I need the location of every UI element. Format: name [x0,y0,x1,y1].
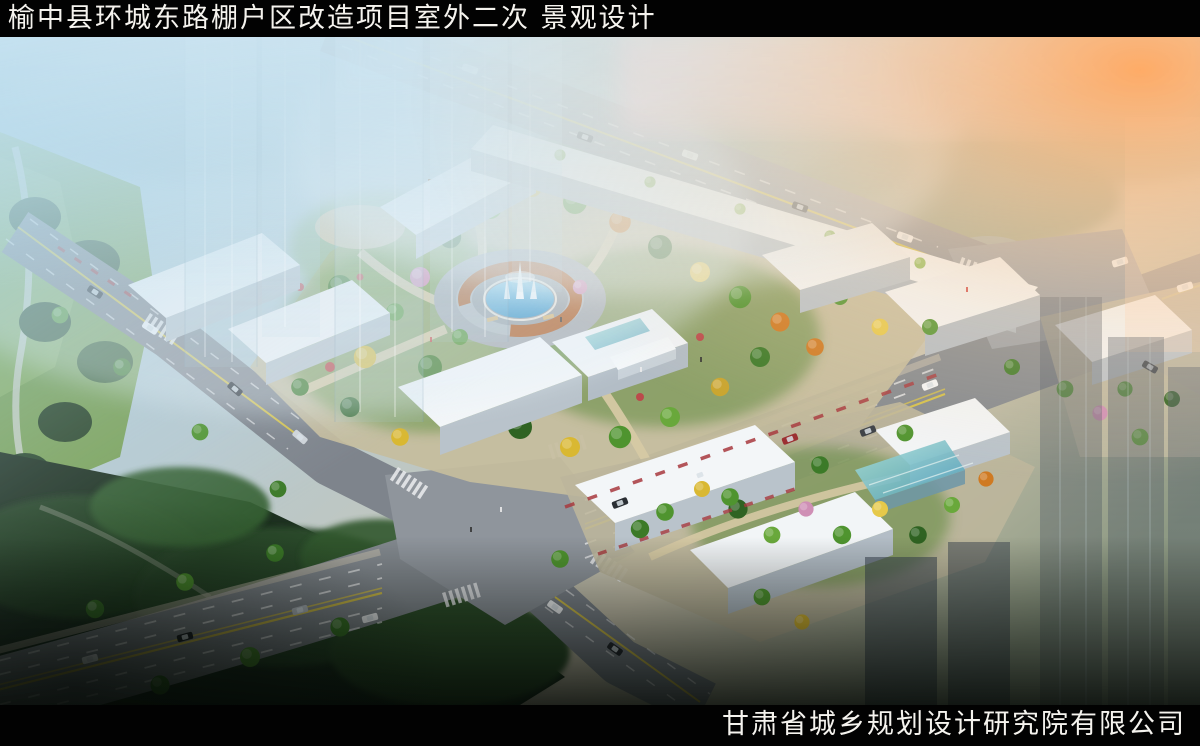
atmosphere [0,37,1200,705]
credit-bar: 甘肃省城乡规划设计研究院有限公司 [0,705,1200,746]
rendering-canvas [0,37,1200,705]
title-bar: 榆中县环城东路棚户区改造项目室外二次 景观设计 [0,0,1200,37]
project-title: 榆中县环城东路棚户区改造项目室外二次 景观设计 [8,3,657,34]
company-name: 甘肃省城乡规划设计研究院有限公司 [722,709,1186,740]
presentation-board: 榆中县环城东路棚户区改造项目室外二次 景观设计 [0,0,1200,746]
rendering-area [0,37,1200,705]
